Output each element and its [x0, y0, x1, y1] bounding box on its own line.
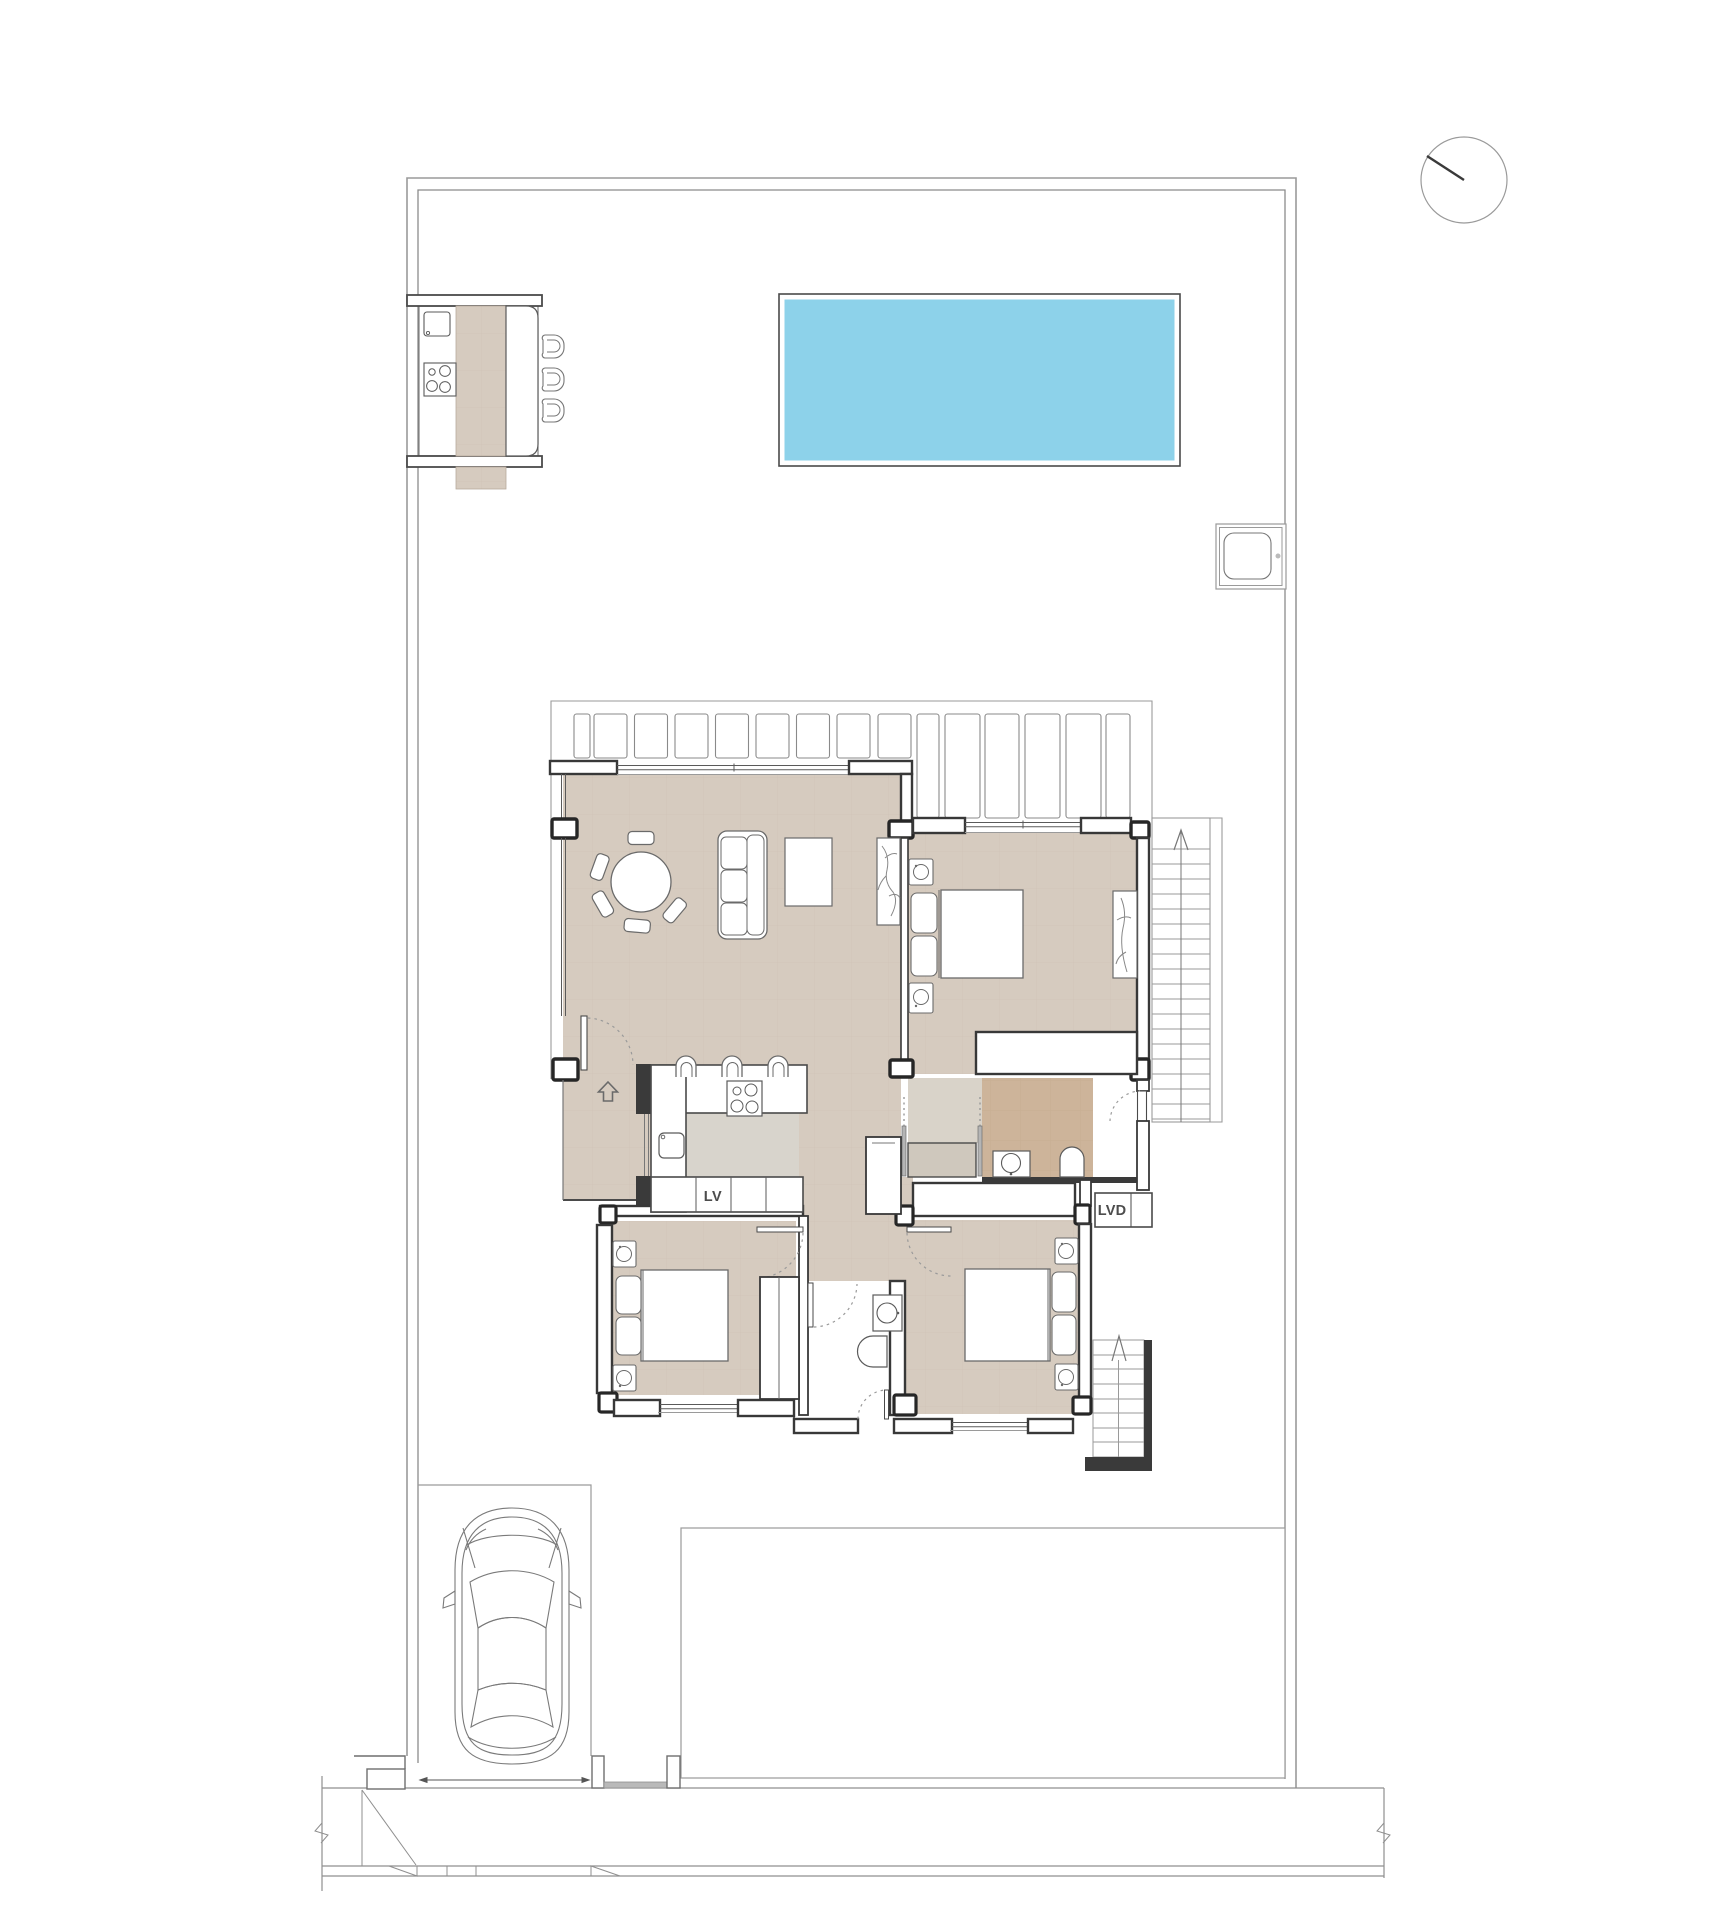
svg-text:LVD: LVD [1098, 1203, 1127, 1219]
svg-text:LV: LV [704, 1189, 722, 1205]
